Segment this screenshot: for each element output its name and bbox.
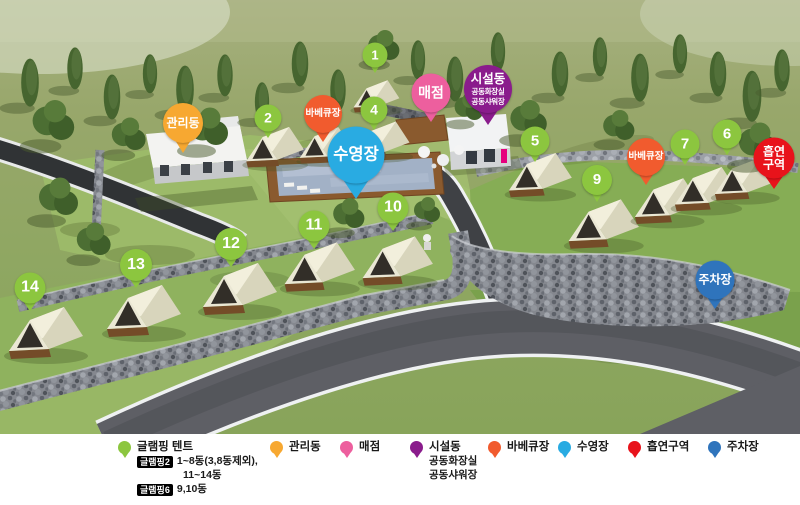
legend-note: 11~14동 xyxy=(137,469,258,482)
pin-label: 시설동공동화장실공동샤워장 xyxy=(464,65,512,113)
legend-label: 흡연구역 xyxy=(647,440,689,454)
legend-item-facility: 시설동공동화장실공동샤워장 xyxy=(410,440,477,482)
legend-label: 매점 xyxy=(359,440,380,454)
pin-label: 11 xyxy=(299,211,330,242)
legend-pin-icon xyxy=(270,441,283,454)
pin-label: 수영장 xyxy=(328,127,385,184)
pin-label: 관리동 xyxy=(163,103,203,143)
pin-label: 주차장 xyxy=(696,261,735,300)
legend-item-store: 매점 xyxy=(340,440,380,454)
pin-label: 7 xyxy=(671,130,700,159)
legend-note-badge: 글램핑2 xyxy=(137,456,173,468)
legend-label: 시설동 xyxy=(429,440,477,454)
legend-item-smoking: 흡연구역 xyxy=(628,440,689,454)
pin-label: 4 xyxy=(361,97,388,124)
legend-text: 글램핑 텐트글램핑21~8동(3,8동제외),11~14동글램핑69,10동 xyxy=(137,440,258,496)
pin-label: 바베큐장 xyxy=(627,138,665,176)
legend-pin-icon xyxy=(558,441,571,454)
legend-note: 글램핑21~8동(3,8동제외), xyxy=(137,455,258,468)
legend-item-pool: 수영장 xyxy=(558,440,609,454)
legend: 글램핑 텐트글램핑21~8동(3,8동제외),11~14동글램핑69,10동관리… xyxy=(0,436,800,505)
legend-pin-icon xyxy=(708,441,721,454)
legend-pin-icon xyxy=(118,441,131,454)
pin-label: 5 xyxy=(521,127,550,156)
legend-item-bbq: 바베큐장 xyxy=(488,440,549,454)
legend-pin-icon xyxy=(628,441,641,454)
pin-label: 바베큐장 xyxy=(304,95,342,133)
pin-label: 2 xyxy=(255,105,282,132)
pin-label: 10 xyxy=(378,193,409,224)
legend-label: 관리동 xyxy=(289,440,321,454)
legend-pin-icon xyxy=(410,441,423,454)
legend-text: 흡연구역 xyxy=(647,440,689,454)
legend-subline: 공동화장실 xyxy=(429,454,477,468)
pin-label: 12 xyxy=(215,228,247,260)
pin-label: 13 xyxy=(120,249,152,281)
legend-pin-icon xyxy=(488,441,501,454)
legend-item-management: 관리동 xyxy=(270,440,321,454)
pin-label: 매점 xyxy=(412,74,451,113)
legend-text: 주차장 xyxy=(727,440,759,454)
campsite-map-page: 12456791011121314관리동바베큐장매점시설동공동화장실공동샤워장수… xyxy=(0,0,800,505)
legend-item-parking: 주차장 xyxy=(708,440,759,454)
pin-label: 흡연구역 xyxy=(754,138,795,179)
legend-text: 바베큐장 xyxy=(507,440,549,454)
legend-label: 바베큐장 xyxy=(507,440,549,454)
legend-note: 글램핑69,10동 xyxy=(137,483,258,496)
legend-pin-icon xyxy=(340,441,353,454)
legend-label: 글램핑 텐트 xyxy=(137,440,258,454)
legend-text: 매점 xyxy=(359,440,380,454)
legend-text: 관리동 xyxy=(289,440,321,454)
pin-label: 6 xyxy=(713,120,742,149)
legend-label: 수영장 xyxy=(577,440,609,454)
legend-text: 수영장 xyxy=(577,440,609,454)
legend-item-glamping-tent: 글램핑 텐트글램핑21~8동(3,8동제외),11~14동글램핑69,10동 xyxy=(118,440,258,496)
pin-label: 1 xyxy=(363,43,388,68)
legend-label: 주차장 xyxy=(727,440,759,454)
pin-label: 14 xyxy=(15,273,46,304)
legend-subline: 공동샤워장 xyxy=(429,468,477,482)
legend-text: 시설동공동화장실공동샤워장 xyxy=(429,440,477,482)
legend-note-badge: 글램핑6 xyxy=(137,484,173,496)
pin-label: 9 xyxy=(582,165,612,195)
